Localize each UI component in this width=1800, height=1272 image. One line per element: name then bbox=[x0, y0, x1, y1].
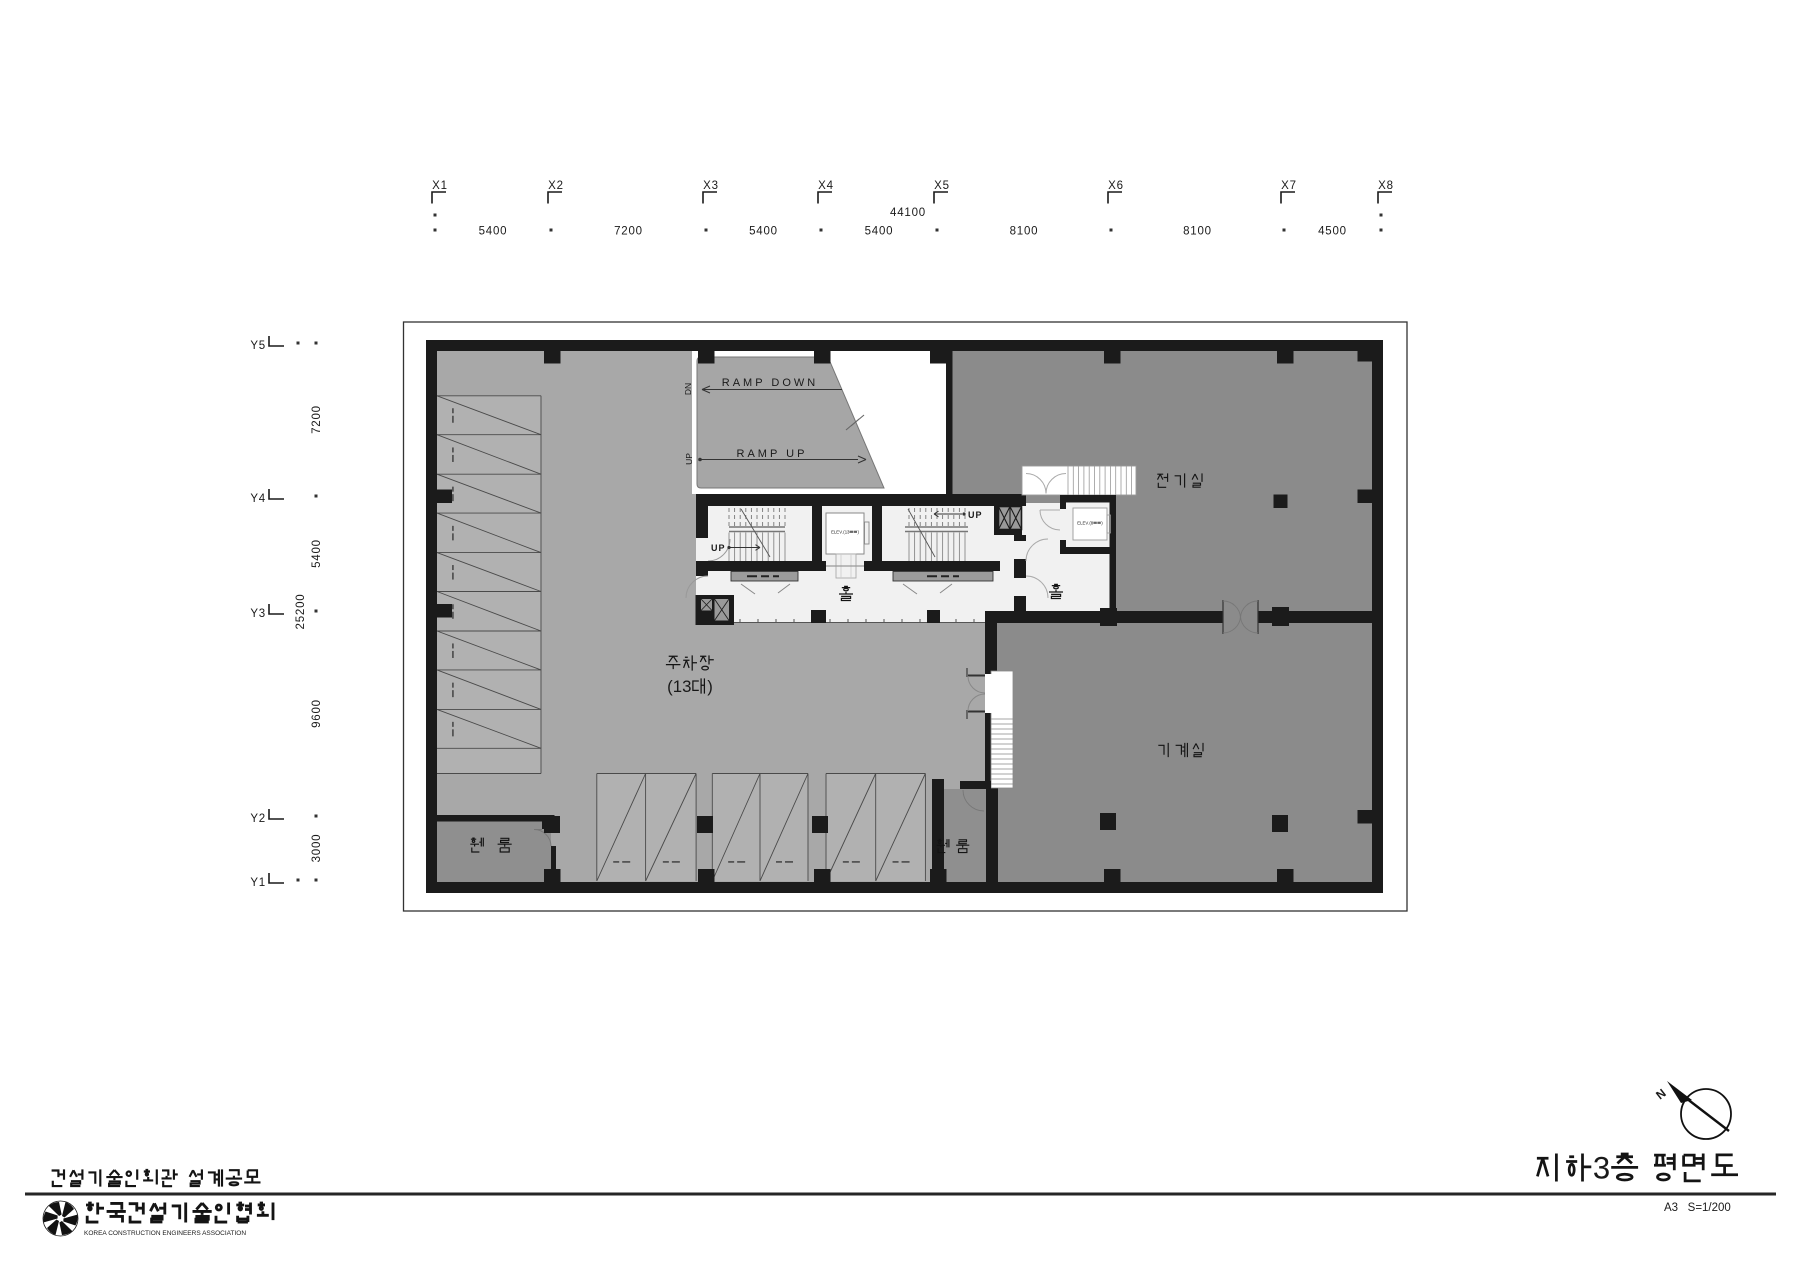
svg-text:RAMP DOWN: RAMP DOWN bbox=[722, 377, 818, 389]
svg-text:9600: 9600 bbox=[311, 699, 323, 728]
svg-text:X5: X5 bbox=[934, 180, 950, 192]
svg-text:X6: X6 bbox=[1108, 180, 1124, 192]
svg-text:7200: 7200 bbox=[311, 405, 323, 434]
svg-text:8100: 8100 bbox=[1183, 226, 1212, 238]
svg-text:Y3: Y3 bbox=[250, 608, 266, 620]
svg-text:5400: 5400 bbox=[865, 226, 894, 238]
svg-text:Y1: Y1 bbox=[250, 877, 266, 889]
svg-text:A3 S=1/200: A3 S=1/200 bbox=[1664, 1202, 1731, 1214]
svg-text:X2: X2 bbox=[548, 180, 564, 192]
svg-text:5400: 5400 bbox=[479, 226, 508, 238]
svg-text:25200: 25200 bbox=[295, 594, 307, 630]
svg-text:3: 3 bbox=[682, 677, 691, 696]
svg-text:1: 1 bbox=[673, 677, 682, 696]
svg-text:RAMP UP: RAMP UP bbox=[737, 448, 808, 460]
svg-text:X1: X1 bbox=[432, 180, 448, 192]
svg-text:UP: UP bbox=[968, 510, 983, 520]
svg-text:UP: UP bbox=[711, 543, 726, 553]
svg-text:44100: 44100 bbox=[890, 207, 926, 219]
svg-text:4500: 4500 bbox=[1318, 226, 1347, 238]
svg-text:X4: X4 bbox=[818, 180, 834, 192]
svg-text:UP: UP bbox=[684, 453, 694, 465]
svg-text:5400: 5400 bbox=[311, 539, 323, 568]
svg-text:X8: X8 bbox=[1378, 180, 1394, 192]
svg-text:3: 3 bbox=[1593, 1150, 1610, 1185]
svg-text:3000: 3000 bbox=[311, 834, 323, 863]
svg-text:Y4: Y4 bbox=[250, 493, 266, 505]
svg-text:Y2: Y2 bbox=[250, 813, 266, 825]
svg-text:X3: X3 bbox=[703, 180, 719, 192]
svg-text:DN: DN bbox=[683, 383, 693, 395]
svg-text:X7: X7 bbox=[1281, 180, 1297, 192]
svg-text:5400: 5400 bbox=[749, 226, 778, 238]
svg-text:8100: 8100 bbox=[1010, 226, 1039, 238]
svg-text:7200: 7200 bbox=[614, 226, 643, 238]
svg-text:): ) bbox=[707, 677, 713, 696]
svg-text:KOREA CONSTRUCTION ENGINEERS: KOREA CONSTRUCTION ENGINEERS ASSOCIATION bbox=[84, 1230, 246, 1237]
svg-text:Y5: Y5 bbox=[250, 340, 266, 352]
